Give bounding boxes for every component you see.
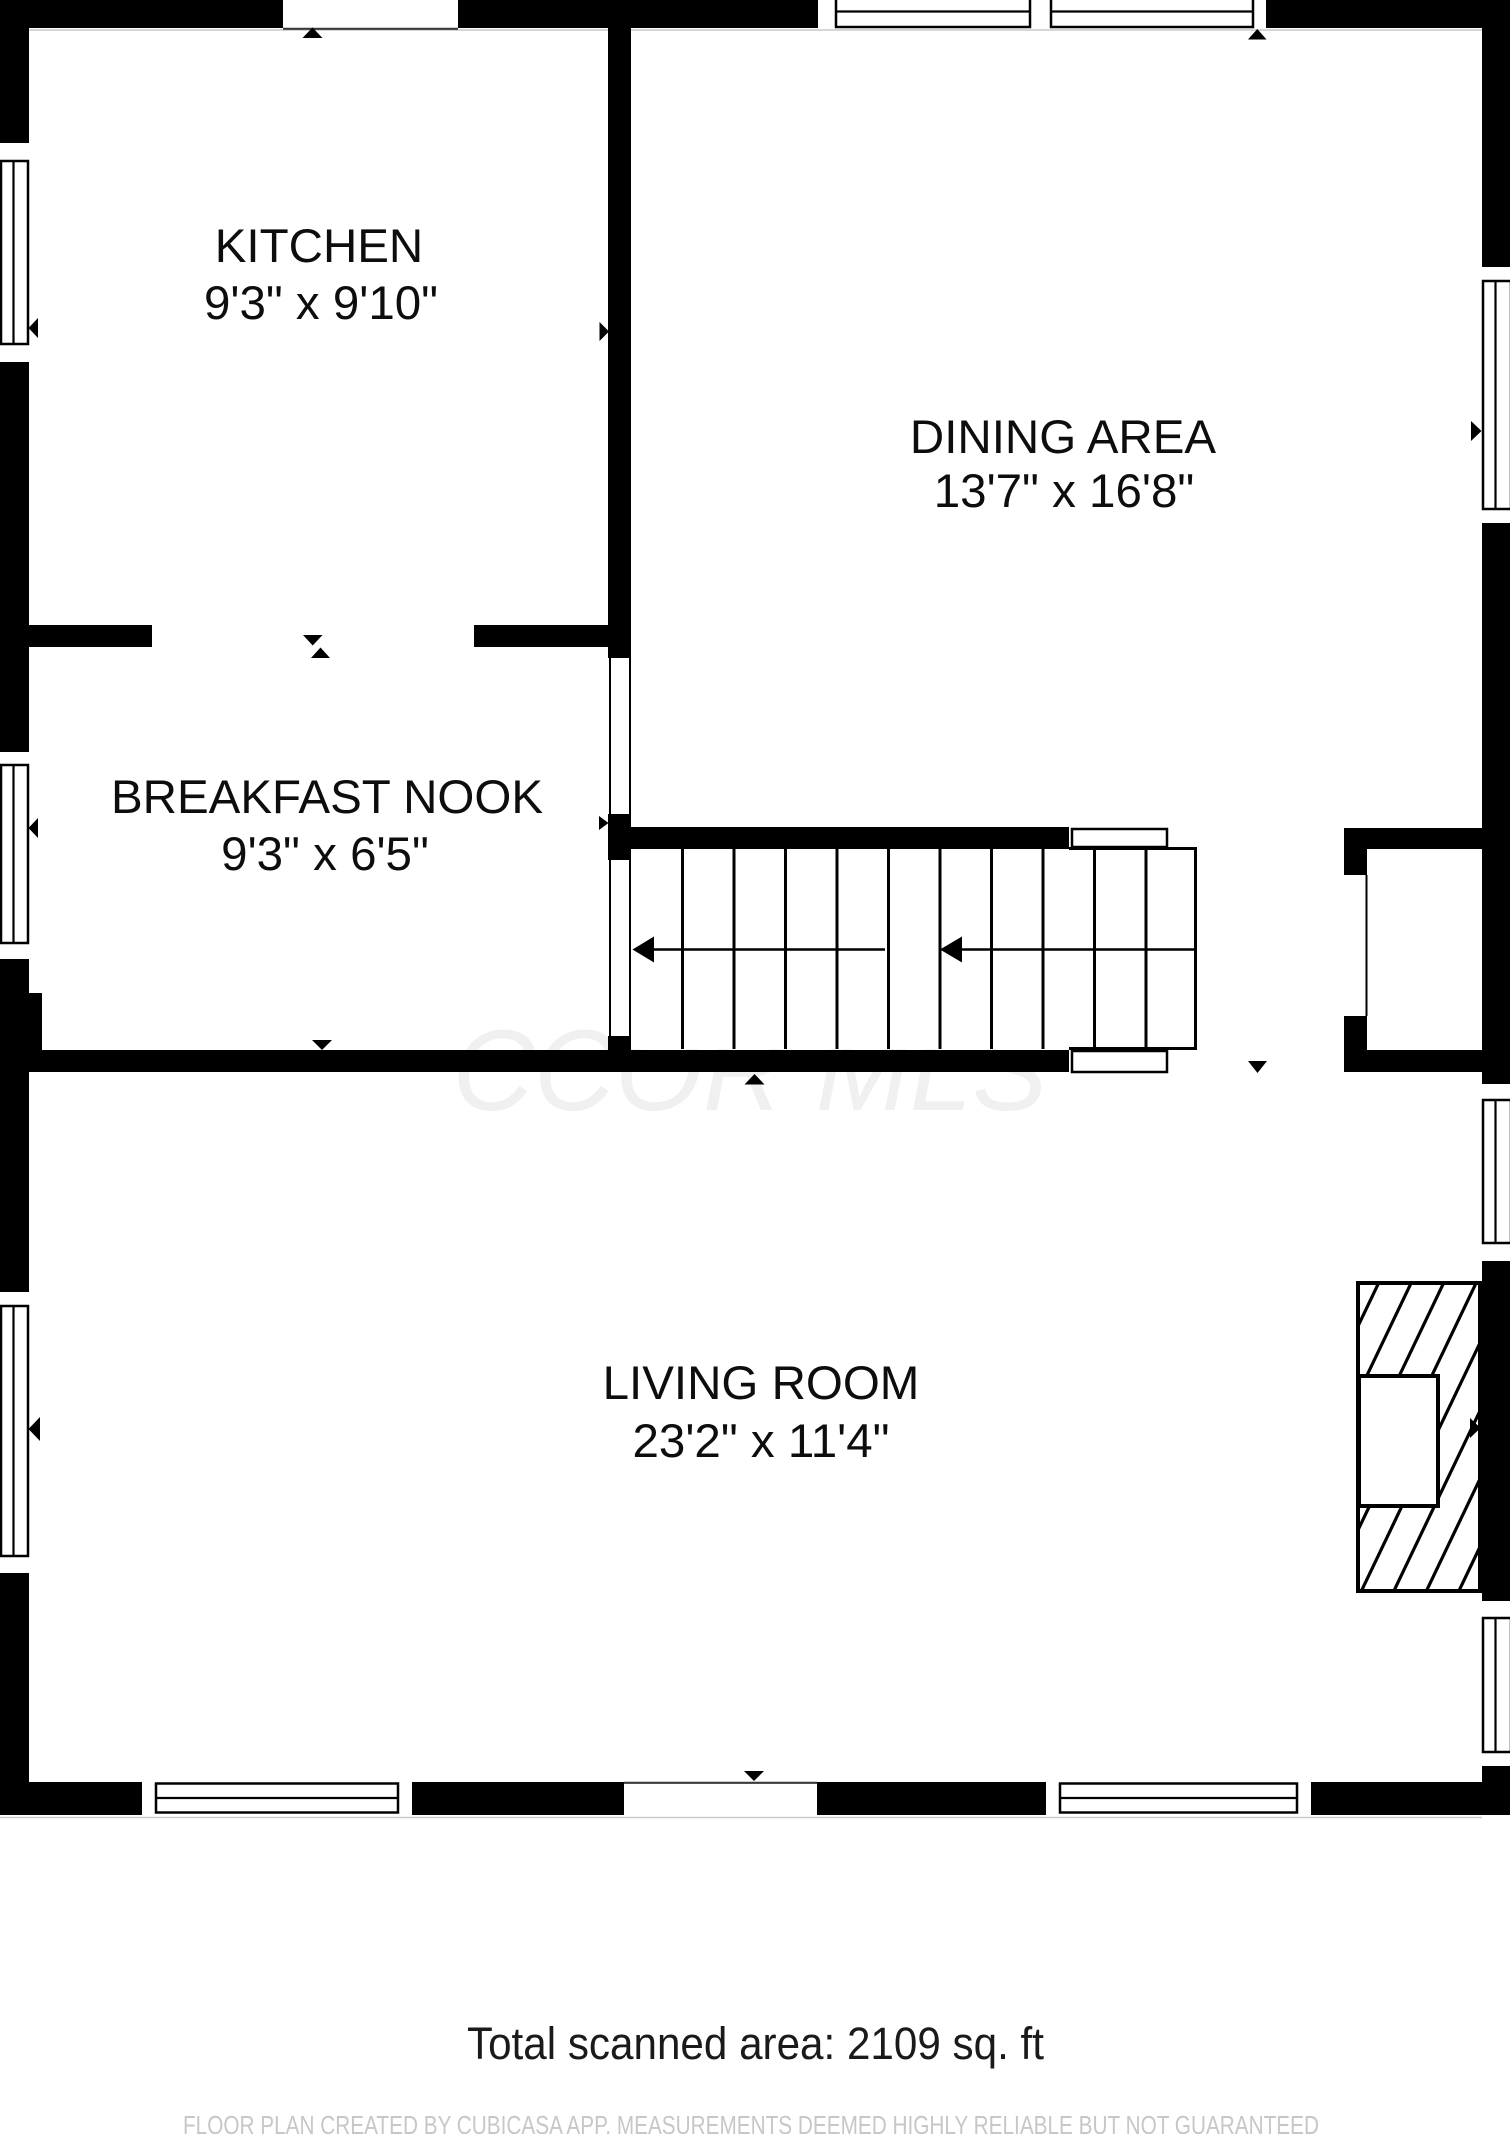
svg-text:23'2" x 11'4": 23'2" x 11'4" xyxy=(633,1415,890,1468)
svg-text:BREAKFAST NOOK: BREAKFAST NOOK xyxy=(111,771,543,824)
svg-text:13'7" x 16'8": 13'7" x 16'8" xyxy=(934,465,1195,518)
svg-text:Total scanned area: 2109 sq. f: Total scanned area: 2109 sq. ft xyxy=(467,2018,1044,2069)
svg-text:FLOOR PLAN CREATED BY CUBICASA: FLOOR PLAN CREATED BY CUBICASA APP. MEAS… xyxy=(183,2110,1319,2134)
svg-text:KITCHEN: KITCHEN xyxy=(215,220,424,273)
svg-text:9'3" x 6'5": 9'3" x 6'5" xyxy=(221,828,429,881)
svg-text:DINING AREA: DINING AREA xyxy=(910,411,1216,464)
svg-text:LIVING ROOM: LIVING ROOM xyxy=(603,1357,920,1410)
svg-text:9'3" x 9'10": 9'3" x 9'10" xyxy=(204,277,438,330)
